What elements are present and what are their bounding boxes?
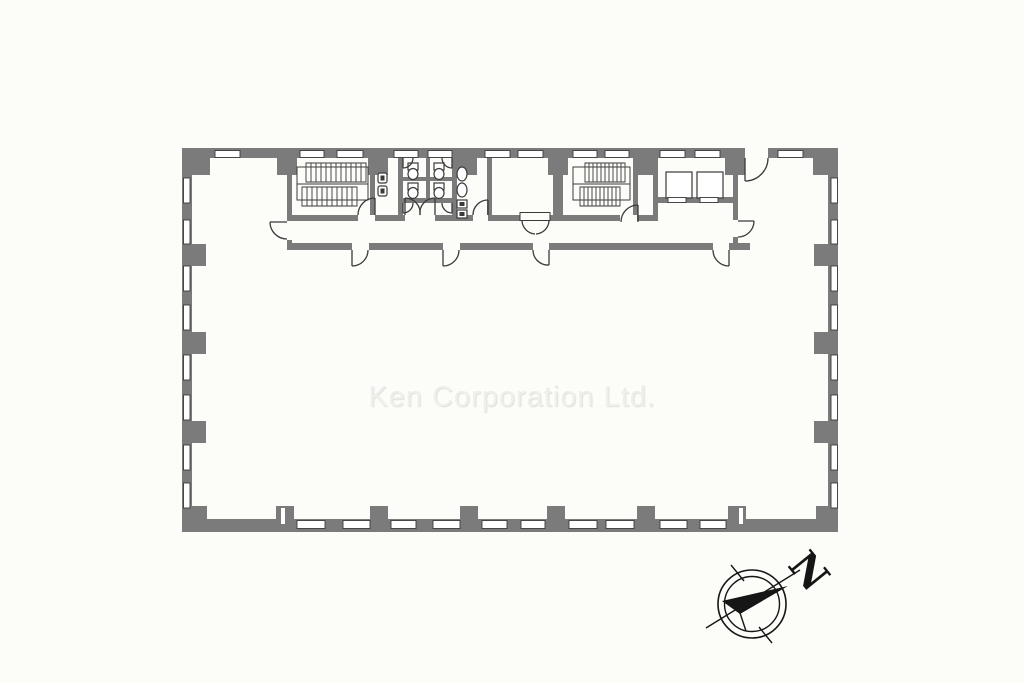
washroom-sinks <box>378 173 387 196</box>
door-swing <box>442 203 452 213</box>
door-swing <box>473 200 488 215</box>
compass-tick <box>759 627 772 643</box>
urinal-room-fixtures <box>457 167 467 218</box>
elevator-car <box>666 172 692 198</box>
compass-tick <box>731 565 744 581</box>
elevator-car <box>697 172 723 198</box>
floor-plan-svg: N <box>0 0 1024 683</box>
staircase-east <box>573 163 630 206</box>
compass-rose: N <box>706 542 838 643</box>
door-swing <box>738 221 754 237</box>
door-swing <box>443 250 459 266</box>
door-swing <box>270 222 287 239</box>
door-swing <box>533 250 549 265</box>
north-label: N <box>779 542 839 600</box>
watermark-text: Ken Corporation Ltd. <box>0 381 1024 414</box>
door-swing <box>713 250 729 266</box>
north-arrow-icon <box>722 586 788 614</box>
floor-plan: N <box>0 0 1024 683</box>
elevator-door <box>700 198 718 203</box>
elevator-door <box>668 198 686 203</box>
corridor-north-wall <box>287 215 658 221</box>
staircase-west <box>297 163 368 206</box>
door-swing <box>745 158 768 181</box>
windows-top <box>215 151 803 158</box>
exterior-walls <box>182 148 838 532</box>
door-swing <box>352 250 368 266</box>
